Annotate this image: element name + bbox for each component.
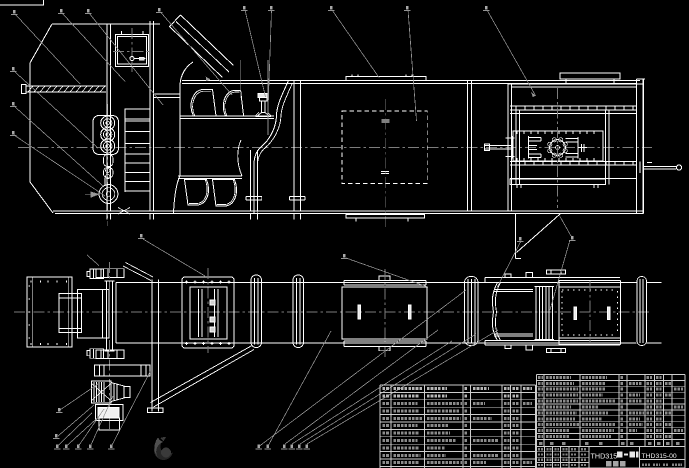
- svg-text:THD315-00: THD315-00: [642, 453, 677, 460]
- svg-text:THD315: THD315: [591, 451, 618, 460]
